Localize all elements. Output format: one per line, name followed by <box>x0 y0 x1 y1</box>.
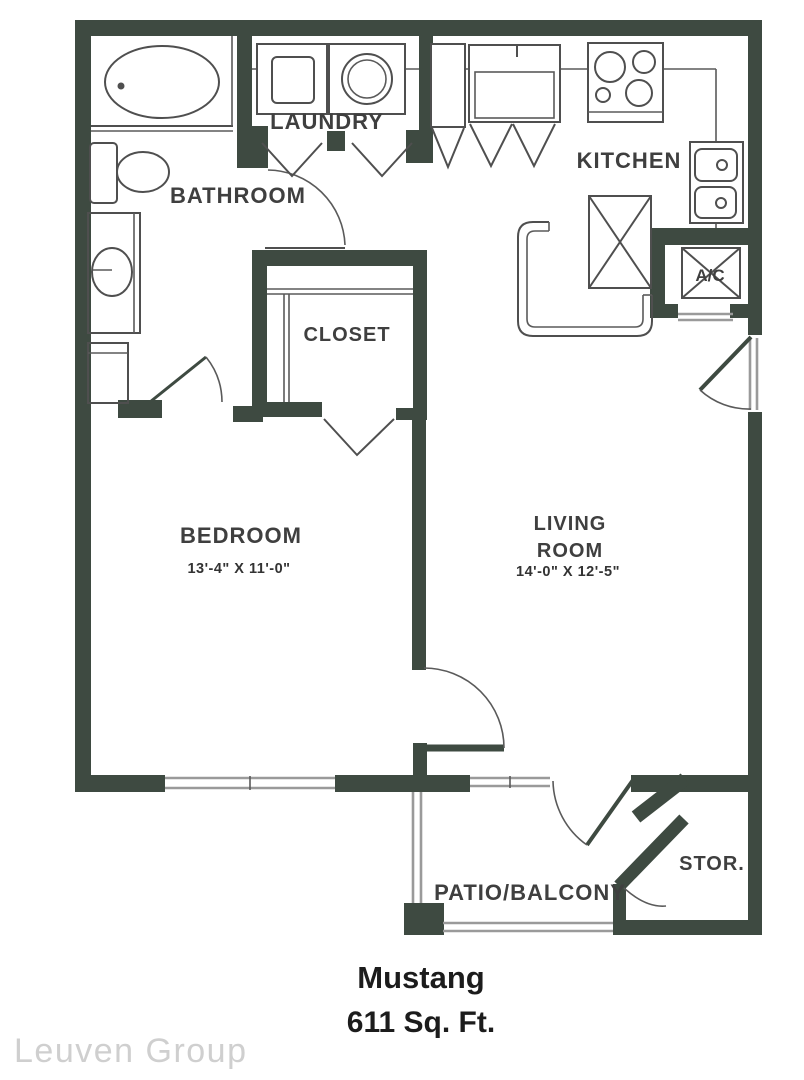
refrigerator <box>431 44 465 167</box>
patio-slider-window <box>470 776 550 788</box>
kitchen-sink <box>690 142 743 223</box>
storage-door <box>624 888 666 906</box>
bedroom-dimensions: 13'-4" X 11'-0" <box>187 561 290 577</box>
kitchen-island <box>589 196 651 288</box>
plan-footer: Mustang 611 Sq. Ft. <box>347 960 495 1039</box>
stove <box>588 43 663 122</box>
plan-name: Mustang <box>357 960 484 995</box>
bathroom-label: BATHROOM <box>170 183 306 208</box>
kitchen-label: KITCHEN <box>577 148 682 173</box>
storage-label: STOR. <box>679 853 745 875</box>
watermark: Leuven Group <box>14 1032 248 1070</box>
dryer <box>329 44 405 114</box>
pantry-cabinets <box>469 45 560 166</box>
bedroom-label: BEDROOM <box>180 523 302 548</box>
patio-label: PATIO/BALCONY <box>434 880 626 905</box>
linen-cabinet <box>88 343 128 403</box>
washer <box>257 44 327 114</box>
floor-plan: LAUNDRY BATHROOM KITCHEN A/C CLOSET BEDR… <box>0 0 804 1080</box>
bathtub <box>91 36 233 131</box>
ac-label: A/C <box>695 266 724 285</box>
living-room-label-line1: LIVING <box>534 513 607 535</box>
toilet <box>90 143 169 203</box>
laundry-label: LAUNDRY <box>270 109 384 134</box>
plan-area: 611 Sq. Ft. <box>347 1006 495 1039</box>
entry-door <box>700 337 757 410</box>
bathroom-door <box>150 357 222 402</box>
bathroom-sink-vanity <box>88 213 140 333</box>
bedroom-window <box>165 776 335 790</box>
closet-bifold-door <box>324 419 394 455</box>
vestibule-door <box>265 170 345 248</box>
bedroom-door <box>424 668 504 748</box>
living-room-dimensions: 14'-0" X 12'-5" <box>516 564 620 580</box>
patio-door <box>553 780 633 845</box>
closet-label: CLOSET <box>303 324 390 346</box>
living-room-label-line2: ROOM <box>537 540 603 562</box>
